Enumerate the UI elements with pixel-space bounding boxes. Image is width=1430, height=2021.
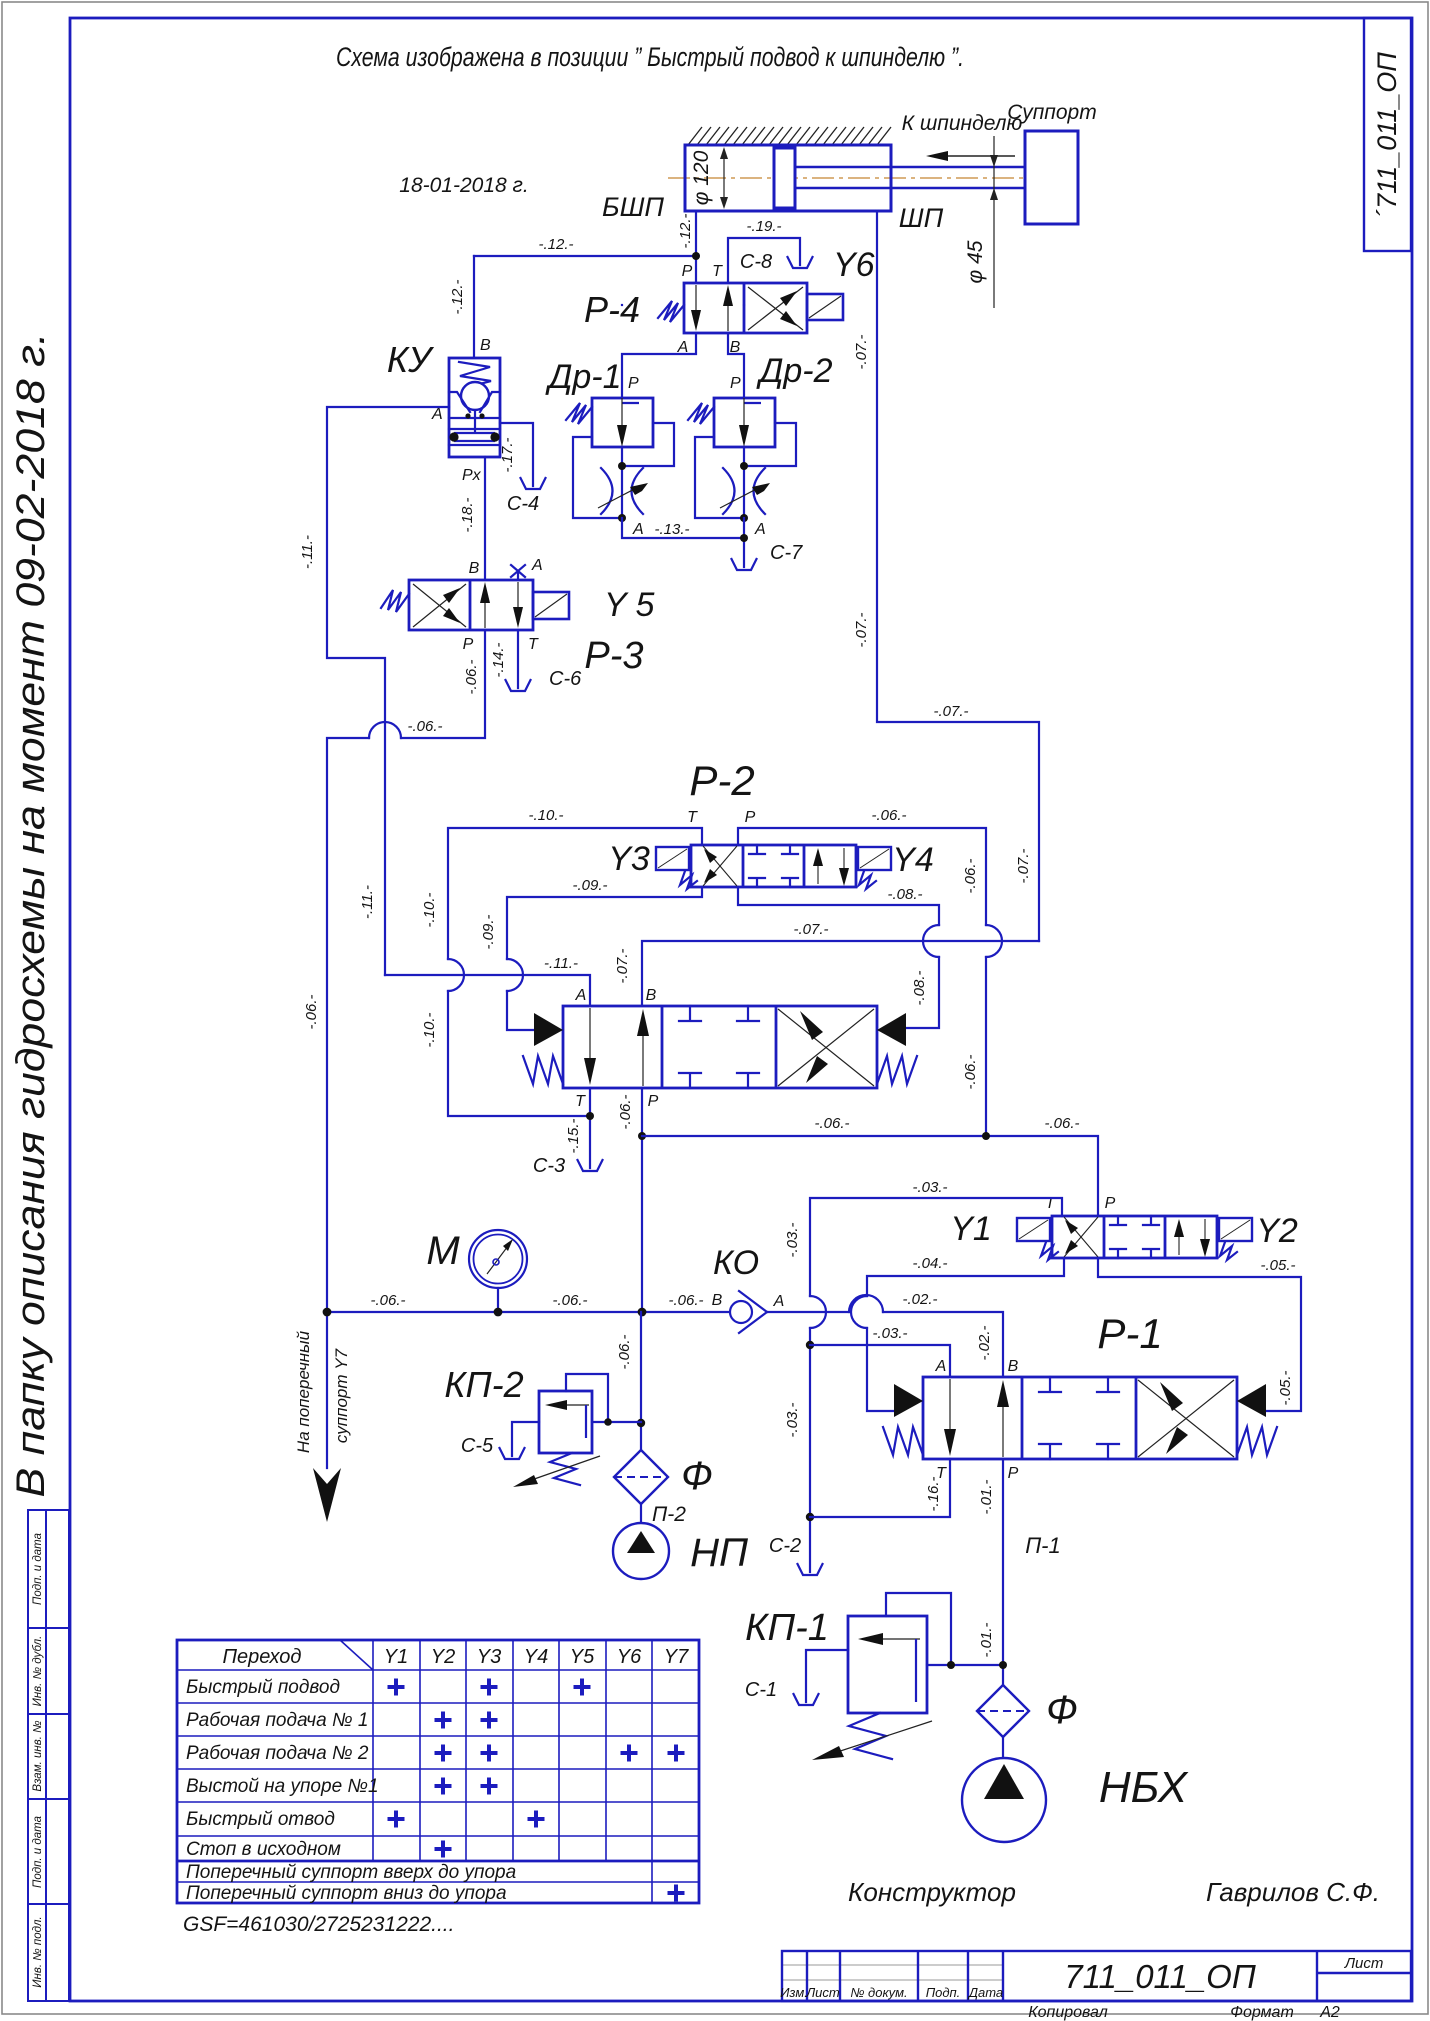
svg-text:В папку описания гидросхемы на: В папку описания гидросхемы на момент 09… — [9, 333, 53, 1498]
svg-text:Поперечный суппорт вверх до уп: Поперечный суппорт вверх до упора — [186, 1862, 516, 1883]
svg-text:-.06.-: -.06.- — [370, 1292, 405, 1309]
svg-text:18-01-2018 г.: 18-01-2018 г. — [399, 174, 528, 197]
svg-text:Формат: Формат — [1230, 2004, 1294, 2021]
svg-text:-.06.-: -.06.- — [617, 1094, 634, 1129]
svg-text:Р-1: Р-1 — [1097, 1310, 1162, 1357]
svg-text:-.03.-: -.03.- — [872, 1325, 907, 1342]
svg-text:Др-2: Др-2 — [755, 352, 832, 390]
svg-text:P: P — [463, 636, 474, 653]
svg-text:-.06.-: -.06.- — [463, 659, 480, 694]
svg-text:-.15.-: -.15.- — [565, 1118, 582, 1153]
svg-text:С-7: С-7 — [770, 542, 803, 564]
svg-text:Р-2: Р-2 — [689, 757, 754, 804]
svg-text:-.06.-: -.06.- — [303, 994, 320, 1029]
svg-text:T: T — [528, 636, 539, 653]
svg-text:Y2: Y2 — [1256, 1212, 1298, 1250]
svg-text:Px: Px — [462, 467, 482, 484]
svg-text:A: A — [531, 557, 543, 574]
svg-text:Y3: Y3 — [477, 1646, 501, 1668]
svg-text:P: P — [1008, 1465, 1019, 1482]
svg-text:T: T — [687, 809, 698, 826]
svg-text:Р-3: Р-3 — [584, 635, 643, 677]
svg-text:φ 45: φ 45 — [964, 240, 987, 283]
svg-text:-.07.-: -.07.- — [1015, 848, 1032, 883]
svg-text:Y3: Y3 — [608, 840, 650, 878]
svg-text:-.10.-: -.10.- — [528, 807, 563, 824]
svg-text:-.06.-: -.06.- — [668, 1292, 703, 1309]
svg-text:-.12.-: -.12.- — [538, 236, 573, 253]
svg-text:Y6: Y6 — [833, 246, 875, 284]
svg-text:С-8: С-8 — [740, 251, 772, 273]
svg-text:A: A — [632, 521, 644, 538]
svg-text:T: T — [712, 263, 723, 280]
svg-text:Y4: Y4 — [524, 1646, 548, 1668]
svg-text:Конструктор: Конструктор — [848, 1877, 1016, 1907]
svg-text:С-4: С-4 — [507, 493, 539, 515]
svg-text:Др-1: Др-1 — [544, 358, 621, 396]
svg-text:P: P — [682, 263, 693, 280]
svg-text:Y1: Y1 — [384, 1646, 408, 1668]
svg-text:A: A — [754, 521, 766, 538]
svg-text:-.06.-: -.06.- — [616, 1334, 633, 1369]
svg-text:-.06.-: -.06.- — [962, 1054, 979, 1089]
svg-text:Y6: Y6 — [617, 1646, 642, 1668]
svg-text:-.03.-: -.03.- — [784, 1402, 801, 1437]
svg-text:Подп. и дата: Подп. и дата — [32, 1533, 44, 1605]
svg-text:Суппорт: Суппорт — [1007, 101, 1096, 124]
svg-text:Ф: Ф — [681, 1454, 713, 1498]
svg-text:КП-2: КП-2 — [444, 1364, 523, 1405]
svg-text:B: B — [469, 560, 480, 577]
svg-text:БШП: БШП — [602, 192, 664, 222]
svg-text:-.12.-: -.12.- — [449, 279, 466, 314]
svg-text:Рабочая подача № 2: Рабочая подача № 2 — [186, 1743, 369, 1764]
svg-text:М: М — [426, 1229, 460, 1273]
svg-text:-.07.-: -.07.- — [793, 921, 828, 938]
svg-text:-.06.-: -.06.- — [871, 807, 906, 824]
svg-text:-.06.-: -.06.- — [814, 1115, 849, 1132]
svg-text:-.06.-: -.06.- — [1044, 1115, 1079, 1132]
svg-text:Стоп в исходном: Стоп в исходном — [186, 1839, 341, 1860]
svg-text:С-2: С-2 — [769, 1535, 801, 1557]
svg-text:Y4: Y4 — [892, 841, 934, 879]
svg-text:Поперечный суппорт вниз до уп: Поперечный суппорт вниз до упора — [186, 1883, 507, 1904]
svg-text:Y5: Y5 — [570, 1646, 595, 1668]
svg-text:P: P — [648, 1093, 659, 1110]
svg-text:-.18.-: -.18.- — [459, 497, 476, 532]
svg-text:Изм.: Изм. — [780, 1985, 808, 2000]
svg-text:Лист: Лист — [1344, 1955, 1384, 1972]
svg-text:-.05.-: -.05.- — [1277, 1370, 1294, 1405]
svg-text:B: B — [712, 1292, 723, 1309]
svg-text:B: B — [1008, 1358, 1019, 1375]
svg-text:-.09.-: -.09.- — [480, 914, 497, 949]
svg-text:-.07.-: -.07.- — [933, 703, 968, 720]
svg-text:Р-4: Р-4 — [584, 289, 640, 330]
svg-text:-.04.-: -.04.- — [912, 1255, 947, 1272]
svg-text:Инв. № дубл.: Инв. № дубл. — [32, 1636, 44, 1707]
svg-text:-.06.-: -.06.- — [962, 858, 979, 893]
svg-text:A: A — [431, 406, 443, 423]
svg-text:Y1: Y1 — [950, 1210, 992, 1248]
svg-text:С-3: С-3 — [533, 1155, 565, 1177]
svg-text:№ докум.: № докум. — [850, 1985, 907, 2000]
svg-text:Взам. инв. №: Взам. инв. № — [32, 1720, 44, 1792]
svg-text:-.11.-: -.11.- — [299, 535, 316, 569]
svg-text:-.17.-: -.17.- — [499, 437, 516, 472]
svg-text:B: B — [480, 337, 491, 354]
svg-text:-.08.-: -.08.- — [887, 886, 922, 903]
svg-text:-.07.-: -.07.- — [853, 334, 870, 369]
svg-text:Подп. и дата: Подп. и дата — [32, 1816, 44, 1888]
svg-text:Y2: Y2 — [431, 1646, 455, 1668]
svg-text:-.02.-: -.02.- — [976, 1325, 993, 1360]
svg-text:P: P — [745, 809, 756, 826]
svg-text:КО: КО — [713, 1244, 759, 1282]
svg-text:Переход: Переход — [223, 1646, 302, 1668]
svg-text:Быстрый отвод: Быстрый отвод — [186, 1809, 335, 1830]
svg-text:П-1: П-1 — [1025, 1533, 1061, 1558]
svg-text:P: P — [1105, 1195, 1116, 1212]
svg-text:-.06.-: -.06.- — [407, 718, 442, 735]
svg-text:-.14.-: -.14.- — [490, 642, 507, 677]
svg-text:Выстой на упоре №1: Выстой на упоре №1 — [186, 1776, 379, 1797]
svg-text:КУ: КУ — [387, 339, 434, 380]
svg-text:Y 5: Y 5 — [604, 586, 655, 624]
svg-text:НБХ: НБХ — [1099, 1763, 1189, 1812]
svg-text:-.13.-: -.13.- — [654, 521, 689, 538]
svg-text:-.01.-: -.01.- — [978, 1622, 995, 1657]
svg-text:P: P — [730, 375, 741, 392]
svg-text:-.12.-: -.12.- — [677, 213, 694, 248]
svg-text:Схема изображена в позиции ”: Схема изображена в позиции ” Быстрый под… — [336, 42, 964, 72]
svg-text:КП-1: КП-1 — [745, 1607, 829, 1649]
svg-text:-.02.-: -.02.- — [902, 1291, 937, 1308]
svg-text:T: T — [575, 1093, 586, 1110]
svg-text:-.05.-: -.05.- — [1260, 1257, 1295, 1274]
svg-text:B: B — [646, 987, 657, 1004]
svg-text:-.07.-: -.07.- — [853, 612, 870, 647]
svg-text:ШП: ШП — [899, 203, 944, 233]
svg-text:-.06.-: -.06.- — [552, 1292, 587, 1309]
svg-text:А2: А2 — [1319, 2004, 1340, 2021]
svg-text:P: P — [628, 375, 639, 392]
svg-text:A: A — [935, 1358, 947, 1375]
svg-text:-.11.-: -.11.- — [359, 885, 376, 919]
svg-text:-.07.-: -.07.- — [614, 948, 631, 983]
svg-text:A: A — [773, 1293, 785, 1310]
svg-text:Y7: Y7 — [664, 1646, 689, 1668]
svg-text:На поперечный: На поперечный — [294, 1330, 313, 1453]
svg-text:С-5: С-5 — [461, 1435, 494, 1457]
svg-text:φ 120: φ 120 — [690, 150, 713, 205]
svg-text:Дата: Дата — [967, 1985, 1003, 2000]
svg-text:суппорт Y7: суппорт Y7 — [332, 1348, 351, 1443]
svg-text:-.01.-: -.01.- — [978, 1479, 995, 1514]
svg-text:Рабочая подача № 1: Рабочая подача № 1 — [186, 1710, 368, 1731]
svg-text:GSF=461030/2725231222....: GSF=461030/2725231222.... — [183, 1913, 454, 1936]
svg-text:НП: НП — [690, 1531, 749, 1575]
svg-text:Ф: Ф — [1046, 1688, 1078, 1732]
svg-text:´711_011_ОП: ´711_011_ОП — [1372, 52, 1402, 218]
svg-text:-.03.-: -.03.- — [912, 1179, 947, 1196]
svg-text:Инв. № подл.: Инв. № подл. — [32, 1916, 44, 1987]
svg-text:A: A — [575, 987, 587, 1004]
svg-text:-.16.-: -.16.- — [925, 1476, 942, 1511]
svg-text:С-1: С-1 — [745, 1679, 777, 1701]
svg-text:-.10.-: -.10.- — [421, 1012, 438, 1047]
svg-text:Подп.: Подп. — [926, 1985, 961, 2000]
svg-text:-.19.-: -.19.- — [746, 218, 781, 235]
svg-text:-.08.-: -.08.- — [911, 970, 928, 1005]
svg-text:-.10.-: -.10.- — [421, 892, 438, 927]
svg-text:711_011_ОП: 711_011_ОП — [1064, 1958, 1256, 1995]
svg-text:С-6: С-6 — [549, 668, 582, 690]
svg-text:Копировал: Копировал — [1028, 2004, 1108, 2021]
svg-text:-.11.-: -.11.- — [544, 955, 578, 972]
svg-text:Быстрый подвод: Быстрый подвод — [186, 1677, 340, 1698]
svg-text:Лист: Лист — [805, 1985, 840, 2000]
svg-text:Гаврилов С.Ф.: Гаврилов С.Ф. — [1206, 1877, 1380, 1907]
svg-text:-.09.-: -.09.- — [572, 877, 607, 894]
svg-text:П-2: П-2 — [652, 1503, 686, 1526]
svg-text:К шпинделю: К шпинделю — [902, 112, 1023, 135]
svg-text:-.03.-: -.03.- — [784, 1222, 801, 1257]
